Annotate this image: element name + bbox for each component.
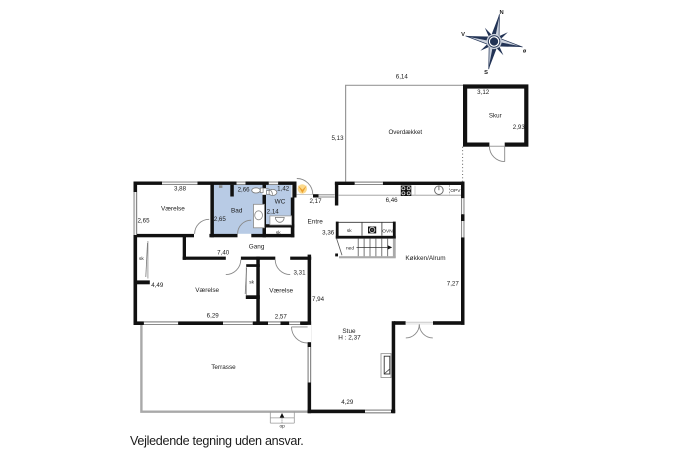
svg-text:Værelse: Værelse (269, 288, 293, 295)
svg-text:2,93: 2,93 (513, 124, 526, 131)
svg-text:Værelse: Værelse (195, 287, 219, 294)
svg-text:Vejledende tegning uden ansvar: Vejledende tegning uden ansvar. (130, 434, 303, 448)
svg-text:6,29: 6,29 (207, 313, 220, 320)
svg-text:7,94: 7,94 (312, 296, 325, 303)
svg-text:Gang: Gang (249, 244, 265, 251)
svg-text:4,49: 4,49 (151, 282, 164, 289)
svg-text:WC: WC (275, 199, 286, 206)
svg-text:OVN: OVN (382, 228, 393, 234)
svg-text:3,31: 3,31 (293, 270, 306, 277)
svg-text:4,29: 4,29 (341, 399, 354, 406)
svg-text:sk: sk (249, 279, 254, 285)
svg-text:OPV: OPV (450, 188, 461, 194)
svg-text:2,57: 2,57 (275, 314, 288, 321)
svg-text:Overdækket: Overdækket (388, 129, 422, 136)
svg-text:Bad: Bad (231, 208, 243, 215)
svg-text:op: op (280, 424, 286, 429)
svg-text:Skur: Skur (489, 112, 502, 119)
svg-text:2,14: 2,14 (267, 209, 280, 216)
svg-text:7,27: 7,27 (447, 281, 460, 288)
svg-text:7,40: 7,40 (217, 249, 230, 256)
svg-text:S: S (484, 70, 488, 76)
svg-text:3,12: 3,12 (477, 89, 490, 96)
svg-text:6,46: 6,46 (386, 197, 399, 204)
svg-text:ø: ø (523, 48, 527, 54)
svg-text:N: N (500, 10, 504, 16)
svg-text:3,88: 3,88 (174, 186, 187, 193)
svg-text:2,65: 2,65 (137, 218, 150, 225)
svg-text:Entre: Entre (308, 219, 324, 226)
svg-text:3,36: 3,36 (322, 229, 335, 236)
svg-text:6,14: 6,14 (396, 73, 409, 80)
svg-text:Værelse: Værelse (161, 206, 185, 213)
svg-text:sk: sk (139, 256, 144, 262)
svg-text:ned: ned (346, 245, 354, 251)
svg-text:1,42: 1,42 (277, 185, 290, 192)
svg-text:2,66: 2,66 (238, 187, 251, 194)
svg-text:H : 2,37: H : 2,37 (338, 334, 361, 341)
svg-text:V: V (461, 32, 465, 38)
svg-text:Terrasse: Terrasse (211, 364, 236, 371)
svg-text:5,13: 5,13 (331, 135, 344, 142)
svg-text:sk: sk (347, 228, 352, 234)
svg-text:2,17: 2,17 (309, 198, 322, 205)
svg-text:Køkken/Alrum: Køkken/Alrum (405, 255, 445, 262)
svg-text:sk: sk (276, 230, 281, 236)
svg-text:2,65: 2,65 (214, 216, 227, 223)
